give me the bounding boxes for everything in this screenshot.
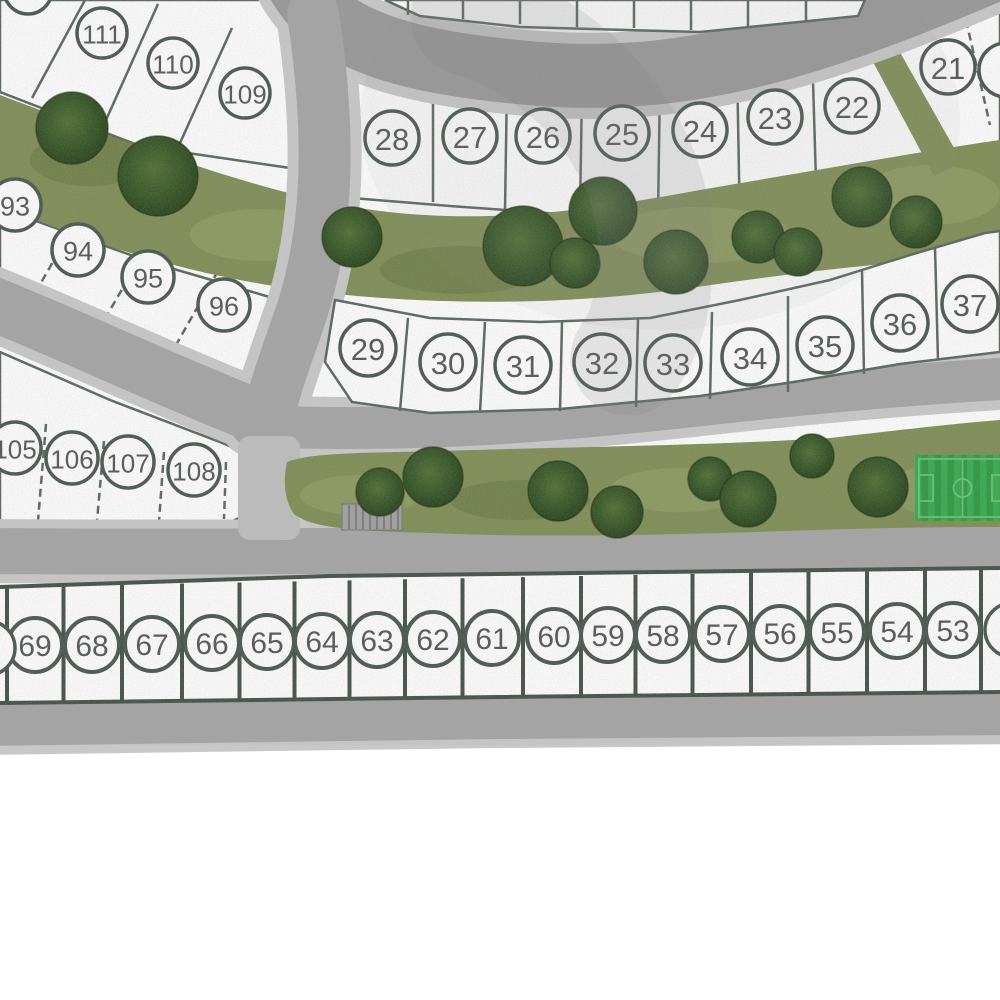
site-plan-page: 1111101092827262524232221939495962930313… bbox=[0, 0, 1000, 1000]
texture-overlay bbox=[0, 0, 1000, 745]
site-plan-map: 1111101092827262524232221939495962930313… bbox=[0, 0, 1000, 1000]
